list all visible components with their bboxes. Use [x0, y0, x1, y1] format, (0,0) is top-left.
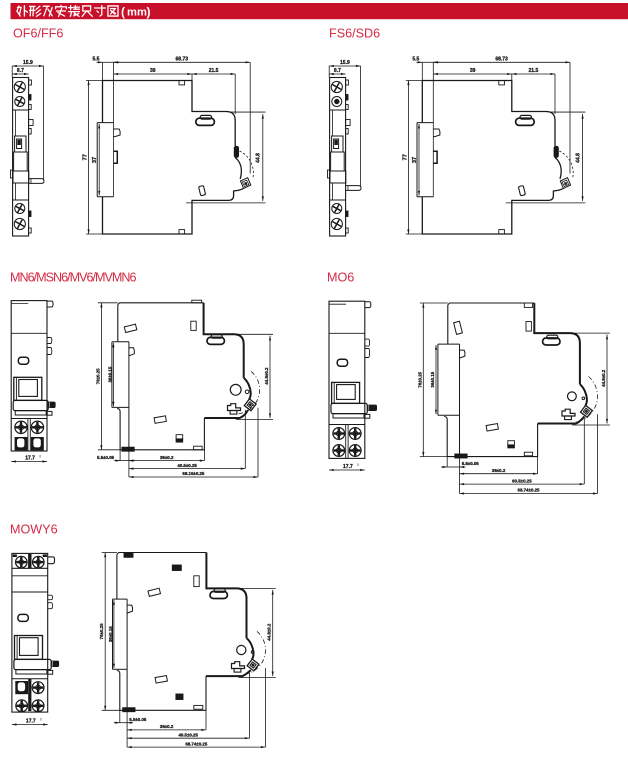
- svg-text:17.7: 17.7: [25, 455, 35, 461]
- svg-text:21.5: 21.5: [529, 68, 539, 74]
- svg-text:77: 77: [402, 154, 408, 160]
- svg-text:44.8±0.2: 44.8±0.2: [267, 623, 272, 641]
- svg-text:36±0.2: 36±0.2: [160, 724, 174, 729]
- svg-text:MN6/MSN6/MV6/MVMN6: MN6/MSN6/MV6/MVMN6: [10, 271, 136, 285]
- svg-text:76±0.25: 76±0.25: [99, 623, 104, 639]
- svg-text:mm: mm: [127, 7, 147, 19]
- svg-text:36±0.2: 36±0.2: [492, 468, 506, 473]
- svg-text:40.5±0.25: 40.5±0.25: [177, 463, 197, 468]
- svg-text:): ): [147, 5, 151, 19]
- svg-text:15.9: 15.9: [23, 60, 33, 66]
- svg-text:0: 0: [39, 454, 41, 458]
- svg-text:76±0.25: 76±0.25: [95, 368, 100, 384]
- svg-text:36±0.15: 36±0.15: [108, 626, 113, 642]
- svg-text:44.8: 44.8: [576, 153, 582, 163]
- svg-text:36±0.15: 36±0.15: [107, 366, 112, 382]
- svg-text:44.8±0.2: 44.8±0.2: [264, 367, 269, 385]
- svg-text:76±0.25: 76±0.25: [417, 371, 422, 387]
- svg-text:44.8±0.2: 44.8±0.2: [601, 369, 606, 387]
- svg-text:21.5: 21.5: [209, 68, 219, 74]
- svg-text:8.7: 8.7: [17, 68, 24, 74]
- svg-text:44.8: 44.8: [256, 153, 262, 163]
- svg-text:15.9: 15.9: [340, 60, 350, 66]
- svg-text:MOWY6: MOWY6: [10, 523, 58, 537]
- svg-text:77: 77: [83, 154, 89, 160]
- svg-text:5.5±0.05: 5.5±0.05: [462, 461, 480, 466]
- svg-text:36±0.15: 36±0.15: [430, 371, 435, 387]
- svg-text:OF6/FF6: OF6/FF6: [13, 27, 63, 41]
- svg-text:60.5±0.25: 60.5±0.25: [512, 478, 532, 483]
- svg-text:MO6: MO6: [327, 271, 354, 285]
- svg-text:39: 39: [150, 68, 156, 74]
- svg-text:5.5: 5.5: [412, 56, 419, 62]
- svg-text:5.5±0.05: 5.5±0.05: [129, 717, 147, 722]
- svg-text:40.5±0.25: 40.5±0.25: [178, 732, 198, 737]
- svg-text:0: 0: [357, 463, 359, 467]
- svg-text:68.74±0.25: 68.74±0.25: [518, 488, 541, 493]
- svg-text:39: 39: [470, 68, 476, 74]
- svg-text:68.73: 68.73: [176, 57, 189, 63]
- svg-text:FS6/SD6: FS6/SD6: [329, 27, 380, 41]
- svg-text:68.16±0.25: 68.16±0.25: [182, 471, 205, 476]
- svg-text:8.7: 8.7: [334, 68, 341, 74]
- svg-text:(: (: [121, 5, 125, 19]
- svg-text:17.7: 17.7: [343, 464, 353, 470]
- svg-text:17.7: 17.7: [26, 718, 36, 724]
- svg-text:5.5±0.05: 5.5±0.05: [97, 455, 115, 460]
- svg-text:5.5: 5.5: [93, 56, 100, 62]
- svg-text:68.73: 68.73: [495, 57, 508, 63]
- svg-text:68.74±0.25: 68.74±0.25: [185, 741, 208, 746]
- svg-text:36±0.2: 36±0.2: [160, 455, 174, 460]
- svg-text:0: 0: [40, 717, 42, 721]
